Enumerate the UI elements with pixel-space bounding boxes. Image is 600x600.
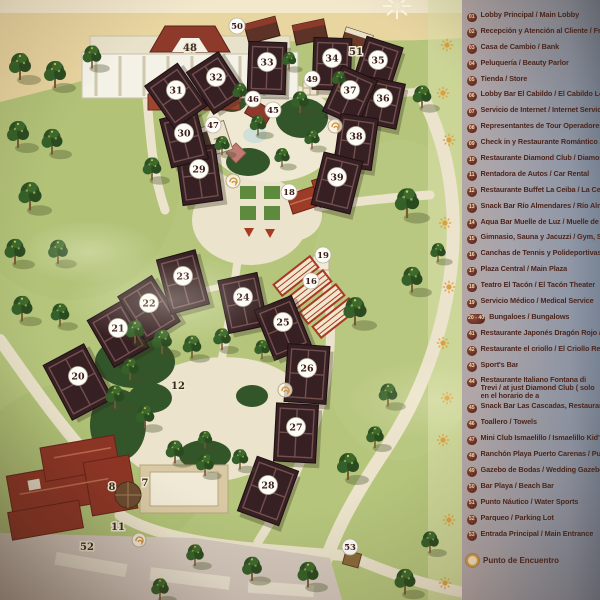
legend-item-number: 41 — [467, 330, 477, 340]
svg-text:51: 51 — [349, 47, 363, 58]
legend-item: 20 - 40Bungaloes / Bungalows — [462, 313, 600, 329]
legend-item-number: 53 — [467, 531, 477, 541]
svg-text:28: 28 — [261, 480, 275, 491]
svg-text:49: 49 — [306, 75, 318, 85]
svg-text:32: 32 — [209, 72, 222, 83]
legend-item-label: Lobby Bar El Cabildo / El Cabildo Lobby … — [481, 90, 600, 98]
legend-item: 03Casa de Cambio / Bank — [462, 43, 600, 59]
legend-item-label: Ranchón Playa Puerto Carenas / Puerto Ca — [481, 450, 600, 458]
legend-item: 14Aqua Bar Muelle de Luz / Muelle de Luz… — [462, 218, 600, 234]
legend-item-number: 46 — [467, 420, 477, 430]
map-marker-35: 35 — [369, 51, 388, 70]
legend-item: 13Snack Bar Río Almendares / Río Almenda… — [462, 202, 600, 218]
svg-text:34: 34 — [325, 53, 339, 64]
legend-item: 53Entrada Principal / Main Entrance — [462, 530, 600, 546]
legend-item-label: Bungaloes / Bungalows — [489, 313, 569, 321]
sun-icon — [439, 217, 451, 229]
map-marker-28: 28 — [259, 476, 278, 495]
legend-item-label: Snack Bar Río Almendares / Río Almendar — [481, 202, 600, 210]
map-marker-46: 46 — [245, 91, 261, 107]
legend-item: 45Snack Bar Las Cascadas, Restaurante Me… — [462, 402, 600, 418]
legend-item: 09Check in y Restaurante Romántico / Che… — [462, 138, 600, 154]
legend-item-label: Restaurante el criollo / El Criollo Rest… — [481, 345, 600, 353]
legend-item: 52Parqueo / Parking Lot — [462, 514, 600, 530]
svg-text:45: 45 — [267, 106, 279, 116]
map-marker-50: 50 — [229, 18, 245, 34]
legend-item: 49Gazebo de Bodas / Wedding Gazebo — [462, 466, 600, 482]
map-marker-11: 11 — [111, 522, 125, 533]
legend-item-number: 04 — [467, 60, 477, 70]
legend-item: 46Toallero / Towels — [462, 418, 600, 434]
svg-text:37: 37 — [343, 85, 356, 96]
legend-item-label: Peluquería / Beauty Parlor — [481, 59, 569, 67]
legend-item-number: 05 — [467, 76, 477, 86]
svg-text:25: 25 — [276, 317, 289, 328]
resort-map-photo: 5048513334353249313736464547303829391819… — [0, 0, 600, 600]
svg-text:27: 27 — [289, 422, 302, 433]
svg-text:48: 48 — [183, 43, 197, 54]
legend-item-label: Servicio de Internet / Internet Service — [481, 106, 600, 114]
legend-item-label: Snack Bar Las Cascadas, Restaurante Mex — [481, 402, 600, 410]
meeting-point-icon — [278, 383, 292, 397]
legend-item-label: Punto Náutico / Water Sports — [481, 498, 579, 506]
svg-text:29: 29 — [192, 164, 206, 175]
meeting-point-icon — [132, 533, 146, 547]
map-marker-37: 37 — [341, 81, 360, 100]
legend-item-label: Toallero / Towels — [481, 418, 537, 426]
legend-item: 05Tienda / Store — [462, 75, 600, 91]
legend-item-number: 07 — [467, 108, 477, 118]
map-marker-38: 38 — [347, 127, 366, 146]
legend-item: 17Plaza Central / Main Plaza — [462, 265, 600, 281]
legend-item-label: Plaza Central / Main Plaza — [481, 265, 568, 273]
sun-icon — [441, 392, 453, 404]
punto-label: Punto de Encuentro — [483, 556, 559, 565]
svg-text:19: 19 — [317, 251, 329, 261]
map-marker-52: 52 — [80, 542, 94, 553]
legend-item: 12Restaurante Buffet La Ceiba / La Ceiba… — [462, 186, 600, 202]
legend-item-label: Entrada Principal / Main Entrance — [481, 530, 594, 538]
legend-item-label: Check in y Restaurante Romántico / Check — [481, 138, 600, 146]
meeting-point-icon — [226, 174, 240, 188]
legend-item-label: Aqua Bar Muelle de Luz / Muelle de Luz A… — [481, 218, 600, 226]
sun-icon — [441, 39, 453, 51]
legend-item: 18Teatro El Tacón / El Tacón Theater — [462, 281, 600, 297]
map-marker-16: 16 — [303, 273, 319, 289]
sun-icon — [439, 577, 451, 589]
legend-item-label: Bar Playa / Beach Bar — [481, 482, 554, 490]
legend-item-label: Gazebo de Bodas / Wedding Gazebo — [481, 466, 600, 474]
sun-icon — [443, 514, 455, 526]
svg-text:20: 20 — [71, 371, 85, 382]
legend-item-number: 11 — [467, 171, 477, 181]
legend-item-number: 48 — [467, 452, 477, 462]
legend-item-label: Restaurante Japonés Dragón Rojo / Dragó — [481, 329, 600, 337]
legend-item-label: Rentadora de Autos / Car Rental — [481, 170, 590, 178]
map-area: 5048513334353249313736464547303829391819… — [0, 0, 462, 600]
legend-item: 16Canchas de Tennis y Polideportivas / T… — [462, 249, 600, 265]
map-marker-29: 29 — [190, 160, 209, 179]
legend-item-number: 09 — [467, 140, 477, 150]
svg-text:47: 47 — [207, 121, 219, 131]
legend-item: 51Punto Náutico / Water Sports — [462, 498, 600, 514]
legend-item-number: 02 — [467, 28, 477, 38]
legend-item-number: 50 — [467, 483, 477, 493]
map-marker-18: 18 — [281, 184, 297, 200]
legend-item: 41Restaurante Japonés Dragón Rojo / Drag… — [462, 329, 600, 345]
legend-item: 43Sport's Bar — [462, 361, 600, 377]
map-marker-19: 19 — [315, 247, 331, 263]
legend-item: 19Servicio Médico / Medical Service — [462, 297, 600, 313]
legend-item-label: Restaurante Italiano Fontana di Trevi / … — [481, 376, 600, 400]
legend-item: 50Bar Playa / Beach Bar — [462, 482, 600, 498]
legend-item-number: 01 — [467, 13, 477, 23]
map-marker-51: 51 — [349, 47, 363, 58]
legend-item-number: 16 — [467, 251, 477, 261]
sun-icon — [437, 337, 449, 349]
legend-item: 07Servicio de Internet / Internet Servic… — [462, 106, 600, 122]
legend-item-number: 12 — [467, 187, 477, 197]
legend-item-label: Casa de Cambio / Bank — [481, 43, 560, 51]
svg-text:35: 35 — [371, 55, 384, 66]
map-marker-39: 39 — [328, 168, 347, 187]
legend-item: 10Restaurante Diamond Club / Diamon Club — [462, 154, 600, 170]
meeting-point-icon — [328, 119, 342, 133]
legend-item-number: 42 — [467, 346, 477, 356]
legend-panel: 01Lobby Principal / Main Lobby02Recepció… — [462, 0, 600, 600]
svg-text:46: 46 — [247, 95, 259, 105]
sun-icon — [443, 134, 455, 146]
legend-item-label: Tienda / Store — [481, 75, 528, 83]
punto-sun-icon — [466, 554, 479, 567]
legend-item-number: 51 — [467, 499, 477, 509]
svg-text:7: 7 — [142, 478, 149, 489]
legend-item-label: Gimnasio, Sauna y Jacuzzi / Gym, Sauna a — [481, 233, 600, 241]
map-marker-27: 27 — [287, 418, 306, 437]
legend-item-number: 20 - 40 — [467, 314, 485, 324]
legend-item-number: 45 — [467, 404, 477, 414]
legend-item: 48Ranchón Playa Puerto Carenas / Puerto … — [462, 450, 600, 466]
map-marker-26: 26 — [298, 359, 317, 378]
legend-item-label: Teatro El Tacón / El Tacón Theater — [481, 281, 596, 289]
map-marker-8: 8 — [109, 482, 116, 493]
legend-items: 01Lobby Principal / Main Lobby02Recepció… — [462, 11, 600, 545]
legend-item: 01Lobby Principal / Main Lobby — [462, 11, 600, 27]
legend-item-number: 43 — [467, 362, 477, 372]
legend-item: 44Restaurante Italiano Fontana di Trevi … — [462, 376, 600, 402]
svg-text:18: 18 — [283, 188, 295, 198]
legend-item-label: Sport's Bar — [481, 361, 519, 369]
svg-text:24: 24 — [236, 292, 250, 303]
legend-item-label: Recepción y Atención al Cliente / Front … — [481, 27, 600, 35]
map-marker-53: 53 — [342, 539, 358, 555]
svg-text:50: 50 — [231, 22, 243, 32]
legend-item-number: 19 — [467, 299, 477, 309]
legend-item-label: Representantes de Tour Operadores / Tour — [481, 122, 600, 130]
legend-item-label: Mini Club Ismaelillo / Ismaelillo Kid's … — [481, 434, 600, 442]
legend-item: 47Mini Club Ismaelillo / Ismaelillo Kid'… — [462, 434, 600, 450]
sun-icon — [437, 87, 449, 99]
map-marker-31: 31 — [167, 81, 186, 100]
legend-item: 04Peluquería / Beauty Parlor — [462, 59, 600, 75]
map-marker-48: 48 — [183, 43, 197, 54]
map-marker-47: 47 — [205, 117, 221, 133]
legend-item-number: 17 — [467, 267, 477, 277]
map-marker-21: 21 — [109, 319, 128, 338]
legend-item-label: Lobby Principal / Main Lobby — [481, 11, 580, 19]
svg-text:12: 12 — [171, 381, 185, 392]
legend-item: 15Gimnasio, Sauna y Jacuzzi / Gym, Sauna… — [462, 233, 600, 249]
svg-text:21: 21 — [111, 323, 124, 334]
legend-item-number: 47 — [467, 436, 477, 446]
map-marker-36: 36 — [374, 89, 393, 108]
svg-text:33: 33 — [260, 57, 273, 68]
map-marker-49: 49 — [304, 71, 320, 87]
legend-item-number: 44 — [467, 378, 477, 388]
legend-item-number: 08 — [467, 124, 477, 134]
map-marker-7: 7 — [142, 478, 149, 489]
legend-item-number: 15 — [467, 235, 477, 245]
legend-item-number: 03 — [467, 44, 477, 54]
legend-item-label: Restaurante Diamond Club / Diamon Club — [481, 154, 600, 162]
legend-item-label: Canchas de Tennis y Polideportivas / Ten… — [481, 249, 600, 257]
legend-item-number: 49 — [467, 467, 477, 477]
map-marker-25: 25 — [274, 313, 293, 332]
map-marker-33: 33 — [258, 53, 277, 72]
svg-text:31: 31 — [169, 85, 182, 96]
map-marker-23: 23 — [174, 267, 193, 286]
svg-text:23: 23 — [176, 271, 189, 282]
legend-item-number: 52 — [467, 515, 477, 525]
legend-item: 42Restaurante el criollo / El Criollo Re… — [462, 345, 600, 361]
map-illustration: 5048513334353249313736464547303829391819… — [0, 0, 462, 600]
svg-text:11: 11 — [111, 522, 125, 533]
map-marker-20: 20 — [69, 367, 88, 386]
sun-icon — [437, 434, 449, 446]
svg-text:39: 39 — [330, 172, 344, 183]
map-marker-34: 34 — [323, 49, 342, 68]
svg-text:26: 26 — [300, 363, 314, 374]
legend-item-label: Servicio Médico / Medical Service — [481, 297, 594, 305]
legend-item-number: 06 — [467, 92, 477, 102]
map-marker-22: 22 — [140, 294, 159, 313]
svg-text:38: 38 — [349, 131, 363, 142]
legend-item-number: 14 — [467, 219, 477, 229]
legend-item: 02Recepción y Atención al Cliente / Fron… — [462, 27, 600, 43]
legend-item: 11Rentadora de Autos / Car Rental — [462, 170, 600, 186]
svg-text:36: 36 — [376, 93, 390, 104]
legend-item-number: 13 — [467, 203, 477, 213]
map-marker-24: 24 — [234, 288, 253, 307]
legend-meeting-point: Punto de Encuentro — [462, 551, 600, 569]
legend-item: 08Representantes de Tour Operadores / To… — [462, 122, 600, 138]
legend-item-number: 10 — [467, 156, 477, 166]
svg-text:22: 22 — [142, 298, 155, 309]
svg-text:30: 30 — [177, 128, 191, 139]
map-marker-30: 30 — [175, 124, 194, 143]
legend-item-label: Parqueo / Parking Lot — [481, 514, 554, 522]
legend-item: 06Lobby Bar El Cabildo / El Cabildo Lobb… — [462, 90, 600, 106]
svg-text:16: 16 — [305, 277, 317, 287]
map-marker-45: 45 — [265, 102, 281, 118]
svg-text:8: 8 — [109, 482, 116, 493]
legend-item-label: Restaurante Buffet La Ceiba / La Ceiba B… — [481, 186, 600, 194]
legend-item-number: 18 — [467, 283, 477, 293]
svg-text:52: 52 — [80, 542, 94, 553]
map-marker-12: 12 — [171, 381, 185, 392]
sun-icon — [443, 281, 455, 293]
svg-text:53: 53 — [344, 543, 356, 553]
map-marker-32: 32 — [207, 68, 226, 87]
